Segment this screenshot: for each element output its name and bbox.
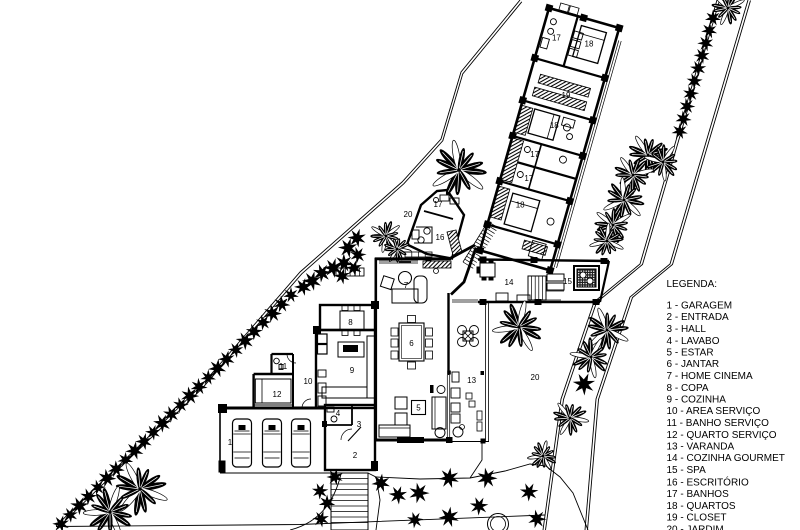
svg-text:8 - COPA: 8 - COPA [667, 383, 709, 394]
svg-text:11 - BANHO SERVIÇO: 11 - BANHO SERVIÇO [667, 418, 770, 429]
svg-text:1 - GARAGEM: 1 - GARAGEM [667, 301, 733, 312]
svg-text:18: 18 [585, 39, 594, 48]
svg-text:8: 8 [348, 318, 353, 327]
svg-text:9 - COZINHA: 9 - COZINHA [667, 395, 727, 406]
svg-text:3: 3 [357, 420, 362, 429]
svg-text:13 - VARANDA: 13 - VARANDA [667, 442, 735, 453]
svg-text:17: 17 [524, 174, 533, 183]
svg-text:19: 19 [562, 91, 571, 100]
svg-text:6 - JANTAR: 6 - JANTAR [667, 359, 720, 370]
svg-text:14 - COZINHA GOURMET: 14 - COZINHA GOURMET [667, 453, 785, 464]
svg-text:17: 17 [552, 33, 561, 42]
svg-text:14: 14 [505, 278, 514, 287]
svg-text:20: 20 [531, 373, 540, 382]
svg-text:2 - ENTRADA: 2 - ENTRADA [667, 312, 730, 323]
svg-text:9: 9 [350, 366, 355, 375]
svg-text:18: 18 [516, 201, 525, 210]
svg-text:6: 6 [409, 339, 414, 348]
svg-text:16: 16 [436, 233, 445, 242]
svg-text:11: 11 [279, 362, 288, 371]
svg-text:17 - BANHOS: 17 - BANHOS [667, 489, 730, 500]
svg-text:5 - ESTAR: 5 - ESTAR [667, 348, 714, 359]
svg-text:17: 17 [434, 200, 443, 209]
svg-text:LEGENDA:: LEGENDA: [667, 279, 718, 290]
svg-text:4: 4 [336, 409, 341, 418]
svg-text:19 - CLOSET: 19 - CLOSET [667, 513, 727, 524]
svg-text:7 - HOME CINEMA: 7 - HOME CINEMA [667, 371, 753, 382]
svg-text:10 - AREA SERVIÇO: 10 - AREA SERVIÇO [667, 406, 761, 417]
svg-text:5: 5 [416, 404, 421, 413]
svg-text:18 - QUARTOS: 18 - QUARTOS [667, 501, 736, 512]
svg-text:7: 7 [404, 281, 409, 290]
svg-text:15 - SPA: 15 - SPA [667, 465, 707, 476]
svg-text:12 - QUARTO SERVIÇO: 12 - QUARTO SERVIÇO [667, 430, 777, 441]
svg-text:13: 13 [467, 376, 476, 385]
svg-text:16 - ESCRITÓRIO: 16 - ESCRITÓRIO [667, 476, 749, 489]
svg-text:20 - JARDIM: 20 - JARDIM [667, 524, 724, 530]
svg-text:2: 2 [353, 451, 358, 460]
svg-text:20: 20 [404, 210, 413, 219]
svg-text:17: 17 [530, 150, 539, 159]
svg-text:3 - HALL: 3 - HALL [667, 324, 707, 335]
svg-text:18: 18 [550, 121, 559, 130]
svg-text:10: 10 [304, 377, 313, 386]
svg-text:15: 15 [563, 277, 572, 286]
svg-text:12: 12 [273, 390, 282, 399]
svg-text:4 - LAVABO: 4 - LAVABO [667, 336, 720, 347]
